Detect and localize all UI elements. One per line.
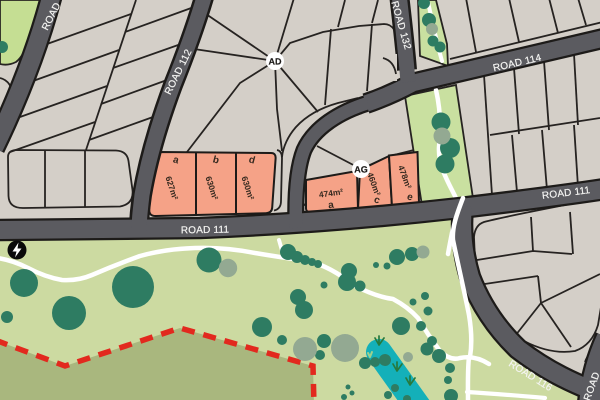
svg-text:AD: AD [269,57,282,67]
svg-text:AG: AG [354,165,368,175]
svg-text:ROAD 111: ROAD 111 [181,225,230,237]
